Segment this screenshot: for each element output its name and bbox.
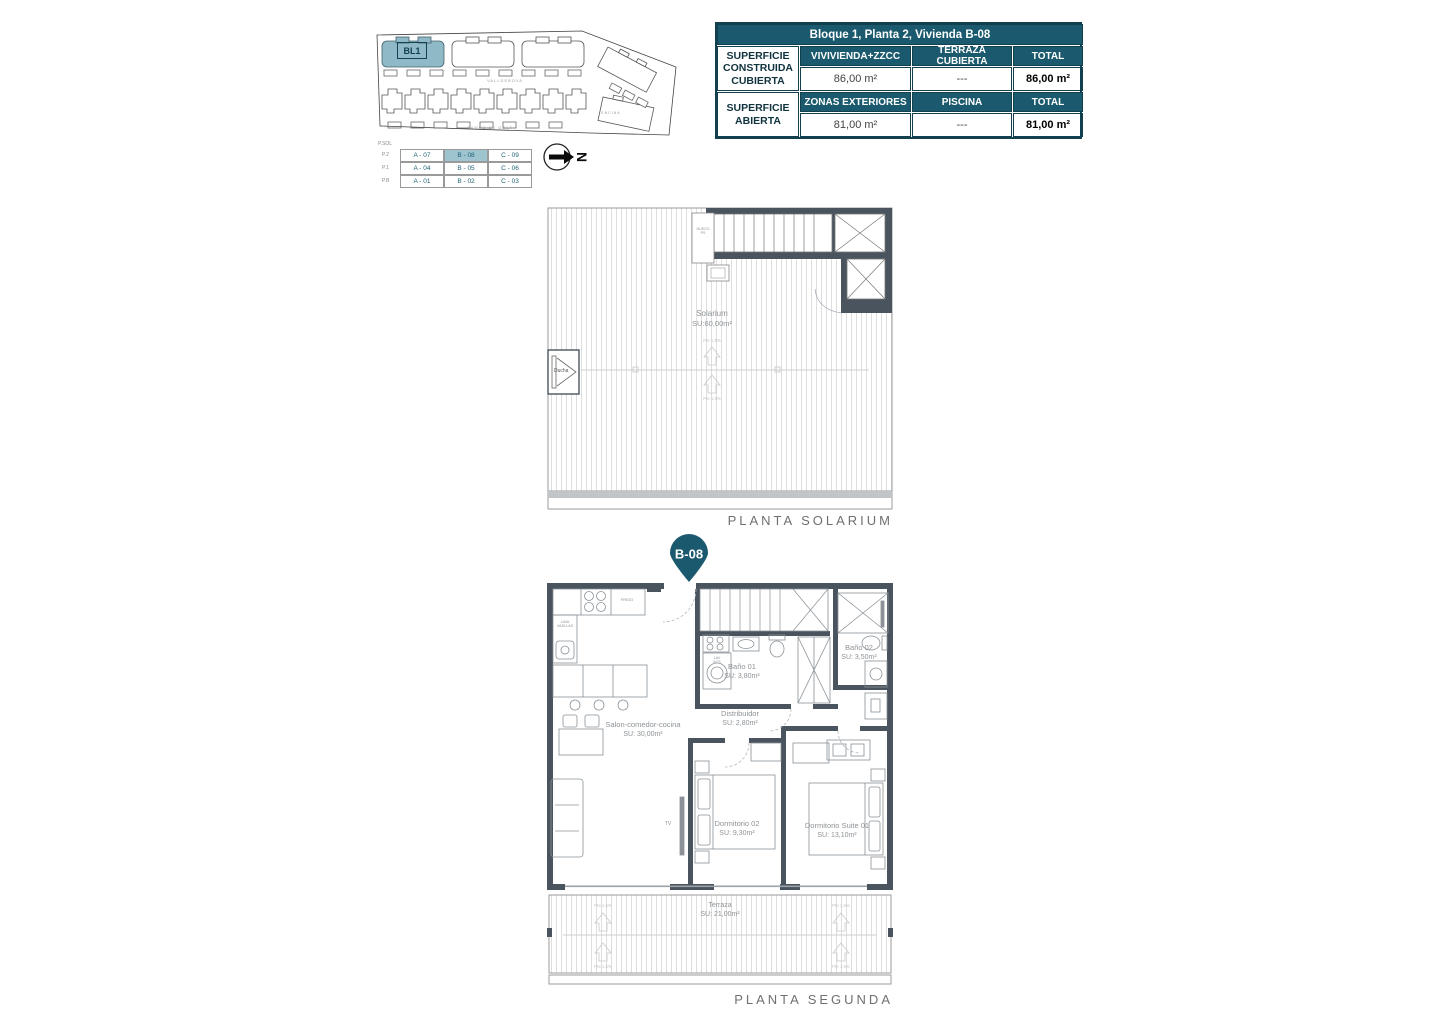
salon-label: Salon-comedor-cocina SU: 30,00m² (583, 720, 703, 739)
unit-cell: C - 03 (488, 175, 532, 188)
unit-cell: A - 04 (400, 162, 444, 175)
unit-cell: C - 09 (488, 149, 532, 162)
terraza-label: Terraza SU: 21,00m² (660, 901, 780, 919)
value-cell: --- (912, 113, 1012, 137)
row-group-label-cubierta: SUPERFICIE CONSTRUIDA CUBIERTA (717, 46, 799, 91)
room-name: Solarium (662, 309, 762, 319)
row-group-label-abierta: SUPERFICIE ABIERTA (717, 92, 799, 137)
slope-label: Pte 1,5% (690, 396, 734, 401)
level-label-p2: P.2 (382, 152, 389, 158)
value-cell: 81,00 m² (800, 113, 911, 137)
room-area: SU: 21,00m² (660, 910, 780, 919)
solarium-plan-graphic (547, 207, 893, 510)
room-name: Salon-comedor-cocina (583, 720, 703, 730)
room-area: SU: 2,80m² (700, 719, 780, 728)
col-header: TOTAL (1013, 92, 1083, 112)
slope-label: Pte 1,5% (581, 903, 625, 908)
tv-label: TV (659, 821, 677, 827)
dorm2-label: Dormitorio 02 SU: 9,30m² (695, 819, 779, 838)
second-floor-plan: FRIGO LAVA VAJILLAS LAV ACS TV Salon-com… (547, 583, 893, 985)
value-cell: --- (912, 67, 1012, 91)
level-label-pb: P.B (382, 178, 389, 184)
fridge-label: FRIGO (613, 597, 641, 602)
room-area: SU: 9,30m² (695, 829, 779, 838)
shower-label: Ducha (554, 368, 568, 374)
room-name: Baño 02 (830, 643, 888, 653)
room-area: SU: 3,50m² (830, 653, 888, 662)
room-area: SU: 3,80m² (707, 672, 777, 681)
total-cell: 81,00 m² (1013, 113, 1083, 137)
room-area: SU: 13,10m² (791, 831, 883, 840)
street-label-top: VALLDEBOVA (460, 78, 550, 83)
solarium-floor-plan: HUECO PS Ducha Solarium SU:60,00m² Pte 1… (547, 207, 893, 510)
room-area: SU: 30,00m² (583, 730, 703, 739)
col-header: TOTAL (1013, 46, 1083, 66)
solarium-caption: PLANTA SOLARIUM (593, 513, 893, 528)
level-label-p1: P.1 (382, 165, 389, 171)
street-label-bottom: CAMPO DE GOLF (445, 125, 535, 130)
second-floor-caption: PLANTA SEGUNDA (593, 992, 893, 1007)
room-name: Dormitorio Suite 01 (791, 821, 883, 831)
bano1-label: Baño 01 SU: 3,80m² (707, 662, 777, 681)
slope-label: Pte 1,5% (581, 964, 625, 969)
site-plan: BL1 VALLDEBOVA CAMPO DE GOLF ENCINA (370, 25, 680, 140)
room-name: Baño 01 (707, 662, 777, 672)
col-header: PISCINA (912, 92, 1012, 112)
distribuidor-label: Distribuidor SU: 2,80m² (700, 709, 780, 728)
unit-level-matrix: P.SOL P.2 P.1 P.B A - 07 B - 08 C - 09 A… (378, 141, 538, 191)
surface-summary-table: Bloque 1, Planta 2, Vivienda B-08 SUPERF… (715, 22, 1082, 139)
room-name: Terraza (660, 901, 780, 910)
solarium-room-label: Solarium SU:60,00m² (662, 309, 762, 329)
unit-cell: A - 07 (400, 149, 444, 162)
col-header: TERRAZA CUBIERTA (912, 46, 1012, 66)
table-title: Bloque 1, Planta 2, Vivienda B-08 (717, 24, 1083, 45)
unit-cell: A - 01 (400, 175, 444, 188)
street-label-right: ENCINA (588, 111, 634, 115)
unit-cell: B - 05 (444, 162, 488, 175)
north-arrow-icon: N (540, 138, 600, 178)
col-header: ZONAS EXTERIORES (800, 92, 911, 112)
shaft-label: HUECO PS (692, 227, 714, 236)
room-area: SU:60,00m² (662, 319, 762, 329)
slope-label: Pte 1,5% (690, 338, 734, 343)
unit-cell: B - 02 (444, 175, 488, 188)
plan-sheet: BL1 VALLDEBOVA CAMPO DE GOLF ENCINA P.SO… (0, 0, 1440, 1024)
pin-label: B-08 (675, 547, 703, 562)
matrix-corner-label: P.SOL (378, 141, 392, 147)
unit-grid: A - 07 B - 08 C - 09 A - 04 B - 05 C - 0… (400, 149, 532, 188)
total-cell: 86,00 m² (1013, 67, 1083, 91)
suite-label: Dormitorio Suite 01 SU: 13,10m² (791, 821, 883, 840)
unit-cell: C - 06 (488, 162, 532, 175)
col-header: VIVIVIENDA+ZZCC (800, 46, 911, 66)
unit-cell-highlighted: B - 08 (444, 149, 488, 162)
block-bl1-label: BL1 (397, 42, 427, 59)
compass-letter: N (574, 152, 590, 162)
value-cell: 86,00 m² (800, 67, 911, 91)
slope-label: Pte 1,5% (819, 903, 863, 908)
bano2-label: Baño 02 SU: 3,50m² (830, 643, 888, 662)
slope-label: Pte 1,5% (819, 964, 863, 969)
unit-marker-pin: B-08 (667, 532, 711, 584)
room-name: Dormitorio 02 (695, 819, 779, 829)
dishwasher-label: LAVA VAJILLAS (553, 620, 577, 629)
room-name: Distribuidor (700, 709, 780, 719)
